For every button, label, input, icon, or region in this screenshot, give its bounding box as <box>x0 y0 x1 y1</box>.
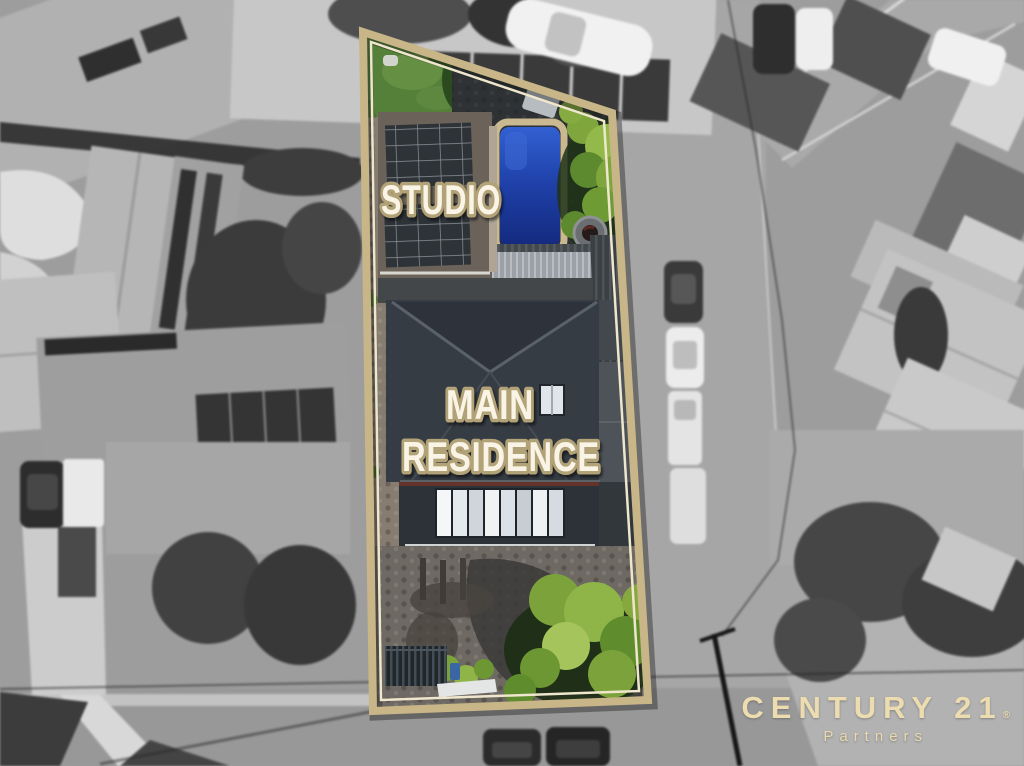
swimming-pool <box>496 122 564 252</box>
aerial-photo-canvas: STUDIO MAIN RESIDENCE <box>0 0 1024 766</box>
century21-logo: CENTURY 21® Partners <box>741 692 1010 744</box>
registered-mark: ® <box>1003 710 1010 721</box>
aerial-photo: STUDIO MAIN RESIDENCE CENTURY 21® Partne… <box>0 0 1024 766</box>
main-residence-label-line1: MAIN <box>446 381 534 428</box>
main-residence-label-line2: RESIDENCE <box>402 433 600 480</box>
brand-wordmark: CENTURY 21® <box>741 692 1010 723</box>
lower-roof-solar <box>399 482 599 546</box>
brand-subtitle: Partners <box>741 729 1010 744</box>
brand-name: CENTURY 21 <box>741 690 1002 725</box>
studio-label: STUDIO <box>381 176 501 223</box>
